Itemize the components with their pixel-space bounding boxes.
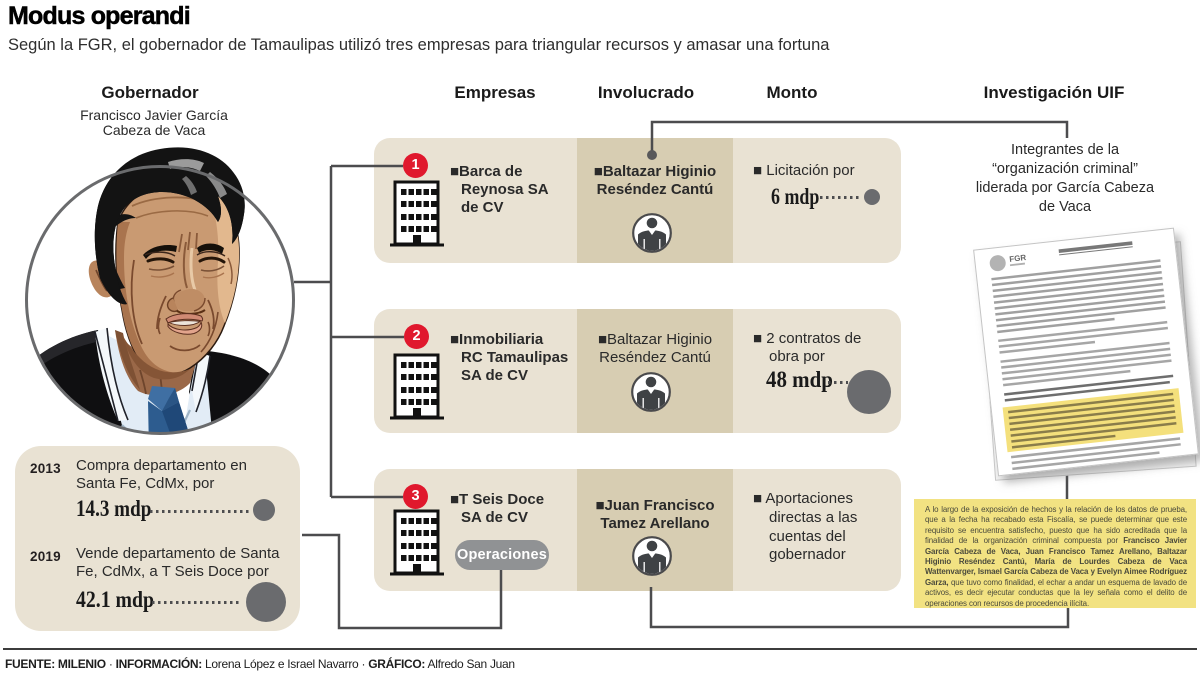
svg-text:FGR: FGR <box>1009 253 1027 264</box>
